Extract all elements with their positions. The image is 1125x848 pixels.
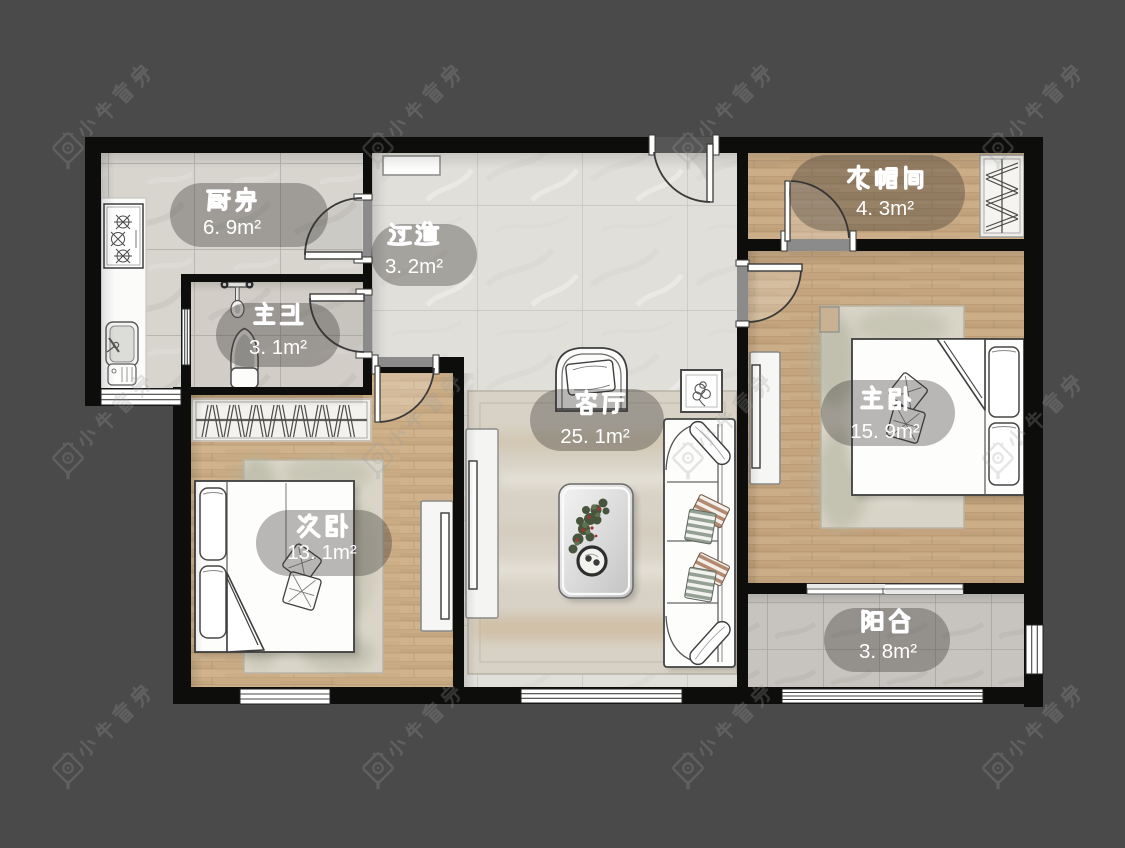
svg-text:3. 8m²: 3. 8m² xyxy=(859,640,917,663)
svg-text:25. 1m²: 25. 1m² xyxy=(560,425,630,448)
svg-text:4. 3m²: 4. 3m² xyxy=(856,197,914,220)
svg-text:13. 1m²: 13. 1m² xyxy=(287,541,357,564)
svg-text:3. 1m²: 3. 1m² xyxy=(249,336,307,359)
svg-text:6. 9m²: 6. 9m² xyxy=(203,216,261,239)
svg-text:3. 2m²: 3. 2m² xyxy=(385,255,443,278)
svg-text:15. 9m²: 15. 9m² xyxy=(850,420,920,443)
